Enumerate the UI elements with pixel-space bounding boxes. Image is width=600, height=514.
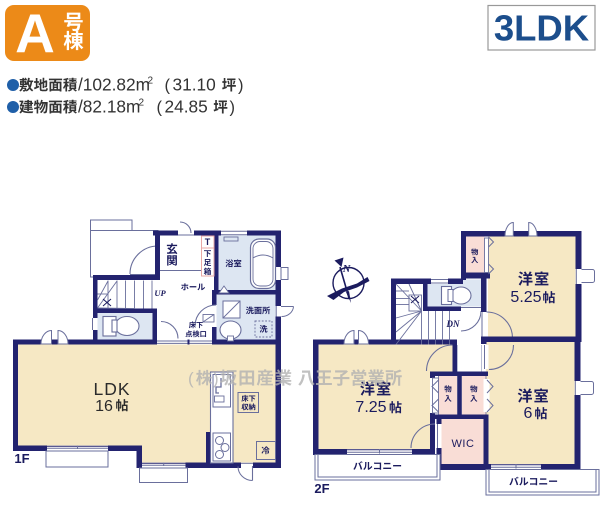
- svg-text:2: 2: [139, 98, 145, 109]
- svg-text:24.85: 24.85: [165, 97, 208, 117]
- svg-text:(: (: [188, 369, 194, 388]
- svg-text:6: 6: [524, 405, 533, 422]
- svg-text:16: 16: [95, 398, 113, 415]
- svg-text:/102.82m: /102.82m: [78, 75, 150, 95]
- svg-text:T: T: [205, 237, 211, 247]
- svg-text:A: A: [15, 2, 55, 64]
- svg-text:DN: DN: [446, 319, 460, 329]
- svg-text:UP: UP: [154, 288, 166, 298]
- svg-text:2F: 2F: [314, 481, 329, 496]
- svg-text:1F: 1F: [14, 451, 29, 466]
- svg-text:3LDK: 3LDK: [494, 8, 590, 49]
- svg-text:5.25: 5.25: [510, 289, 541, 306]
- svg-text:(: (: [165, 77, 171, 95]
- svg-text:): ): [213, 369, 219, 388]
- svg-text:): ): [238, 77, 244, 95]
- svg-text:): ): [230, 99, 236, 117]
- svg-text:(: (: [157, 99, 163, 117]
- svg-text:2: 2: [148, 76, 154, 87]
- svg-text:31.10: 31.10: [173, 75, 216, 95]
- svg-text:N: N: [342, 264, 351, 275]
- svg-text:/82.18m: /82.18m: [78, 97, 140, 117]
- svg-text:WIC: WIC: [452, 438, 475, 450]
- svg-text:7.25: 7.25: [355, 399, 386, 416]
- svg-text:LDK: LDK: [93, 379, 130, 399]
